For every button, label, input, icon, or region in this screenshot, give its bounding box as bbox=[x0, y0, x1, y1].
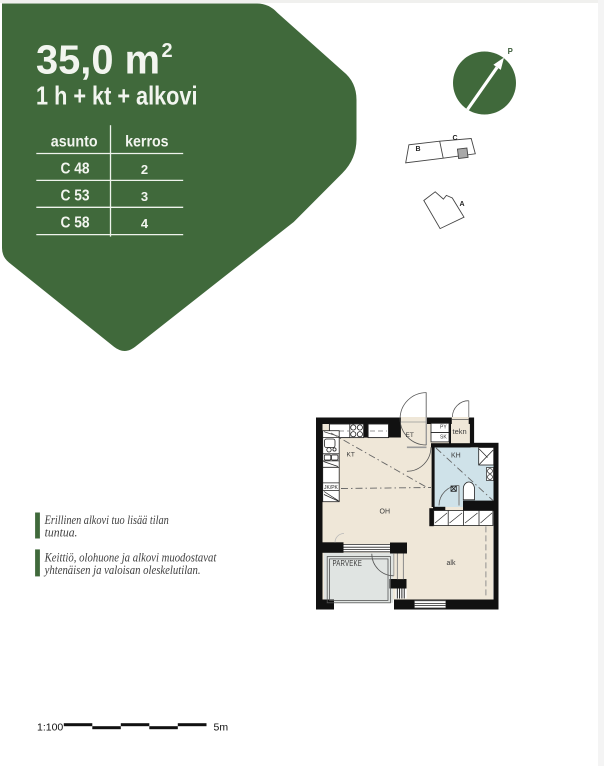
svg-text:C: C bbox=[453, 135, 458, 142]
svg-text:ET: ET bbox=[406, 432, 414, 439]
svg-text:1 h + kt + alkovi: 1 h + kt + alkovi bbox=[36, 81, 198, 111]
svg-text:KT: KT bbox=[347, 452, 355, 459]
svg-text:alk: alk bbox=[447, 560, 456, 567]
svg-text:C 48: C 48 bbox=[61, 161, 90, 178]
svg-text:3: 3 bbox=[141, 189, 148, 204]
svg-text:tuntua.: tuntua. bbox=[45, 526, 78, 540]
svg-text:KH: KH bbox=[451, 452, 461, 459]
svg-text:P: P bbox=[508, 47, 513, 56]
svg-text:asunto: asunto bbox=[51, 134, 98, 151]
svg-text:PARVEKE: PARVEKE bbox=[333, 559, 363, 568]
svg-text:tekn: tekn bbox=[453, 427, 467, 436]
svg-text:A: A bbox=[460, 201, 465, 208]
svg-text:5m: 5m bbox=[214, 722, 229, 734]
svg-text:OH: OH bbox=[380, 509, 391, 516]
svg-text:1:100: 1:100 bbox=[37, 722, 63, 734]
svg-text:4: 4 bbox=[141, 216, 149, 231]
svg-text:PY: PY bbox=[440, 425, 447, 431]
svg-text:C 53: C 53 bbox=[61, 188, 90, 205]
svg-text:2: 2 bbox=[141, 162, 148, 177]
svg-text:35,0 m: 35,0 m bbox=[36, 37, 160, 83]
svg-text:SK: SK bbox=[440, 435, 447, 441]
svg-text:kerros: kerros bbox=[125, 134, 169, 151]
svg-text:C 58: C 58 bbox=[61, 214, 90, 231]
svg-text:yhtenäisen ja valoisan oleskel: yhtenäisen ja valoisan oleskelutilan. bbox=[43, 563, 201, 577]
svg-text:JK/PK: JK/PK bbox=[324, 485, 339, 491]
svg-text:B: B bbox=[416, 146, 421, 153]
svg-text:2: 2 bbox=[162, 40, 173, 62]
